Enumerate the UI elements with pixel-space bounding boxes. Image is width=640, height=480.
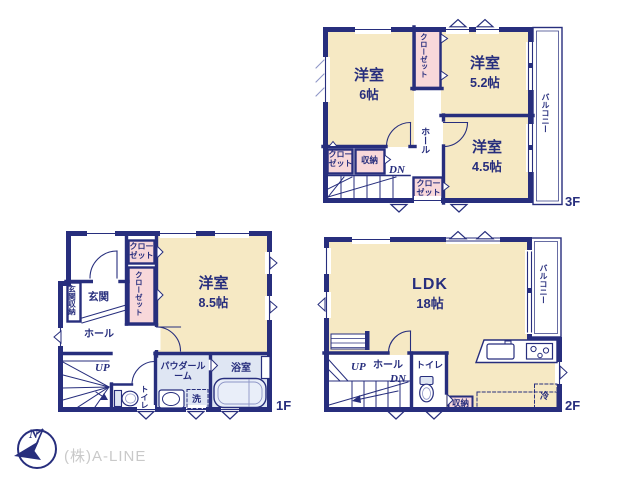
floor2-plan (318, 232, 567, 420)
room-size-3f-b: 5.2帖 (457, 76, 513, 90)
closet-label-3f-mid: クローゼット (419, 33, 427, 87)
down-label-2f: DN (390, 373, 406, 385)
compass-north-label: N (28, 426, 39, 441)
toilet-icon-2f (420, 377, 434, 402)
hall-label-3f: ホール (420, 127, 430, 165)
room-size-1f: 8.5帖 (185, 296, 242, 310)
sink-icon (159, 390, 184, 408)
up-label-1f: UP (95, 362, 110, 374)
compass-icon: N (14, 426, 56, 468)
down-label-3f: DN (389, 164, 405, 176)
closet-label-1f-side: クローゼット (134, 271, 142, 323)
balcony-label-2f: バルコニー (538, 264, 547, 318)
storage-label-2f: 収納 (448, 399, 473, 409)
floor-label-2f: 2F (565, 399, 580, 414)
room-label-3f-b: 洋室 (457, 56, 513, 73)
toilet-label-1f: トイレ (139, 385, 148, 411)
entrance-label: 玄関 (88, 292, 109, 304)
entrance-storage-label: 玄関収納 (68, 285, 76, 321)
kitchen-counter (476, 340, 557, 363)
floor-label-3f: 3F (565, 195, 580, 210)
window-bench (331, 331, 370, 350)
room-label-3f-c: 洋室 (459, 140, 515, 157)
closet-label-1f-top: クローゼット (129, 243, 154, 261)
floorplan-drawing: N (0, 0, 640, 480)
hall-label-1f: ホール (84, 329, 114, 340)
room-label-3f-a: 洋室 (341, 68, 397, 85)
bath-label: 浴室 (225, 363, 257, 374)
entrance-step (82, 305, 126, 323)
up-label-2f: UP (351, 361, 366, 373)
toilet-label-2f: トイレ (414, 360, 445, 370)
room-size-3f-a: 6帖 (341, 88, 397, 102)
closet-label-3f-right: クローゼット (414, 180, 443, 198)
powder-room-label: パウダールーム (160, 361, 206, 381)
closet-label-3f-left: クローゼット (328, 151, 353, 169)
storage-label-3f: 収納 (355, 156, 384, 166)
fridge-label-2f: 冷 (540, 391, 549, 401)
floor-label-1f: 1F (276, 399, 291, 414)
company-name: (株)A-LINE (64, 449, 146, 466)
ldk-label: LDK (400, 276, 460, 294)
balcony-label-3f: バルコニー (540, 93, 549, 147)
ldk-size: 18帖 (400, 297, 460, 312)
room-size-3f-c: 4.5帖 (459, 160, 515, 174)
stairs-3f (327, 176, 410, 200)
room-label-1f: 洋室 (185, 276, 242, 293)
hall-label-2f: ホール (373, 360, 403, 371)
laundry-label: 洗 (192, 394, 201, 404)
toilet-icon-1f (115, 391, 139, 407)
floor1-plan (54, 229, 277, 419)
floorplan-page: N 洋室 6帖 洋室 5.2帖 洋室 4.5帖 クローゼット ホール DN クロ… (0, 0, 640, 480)
